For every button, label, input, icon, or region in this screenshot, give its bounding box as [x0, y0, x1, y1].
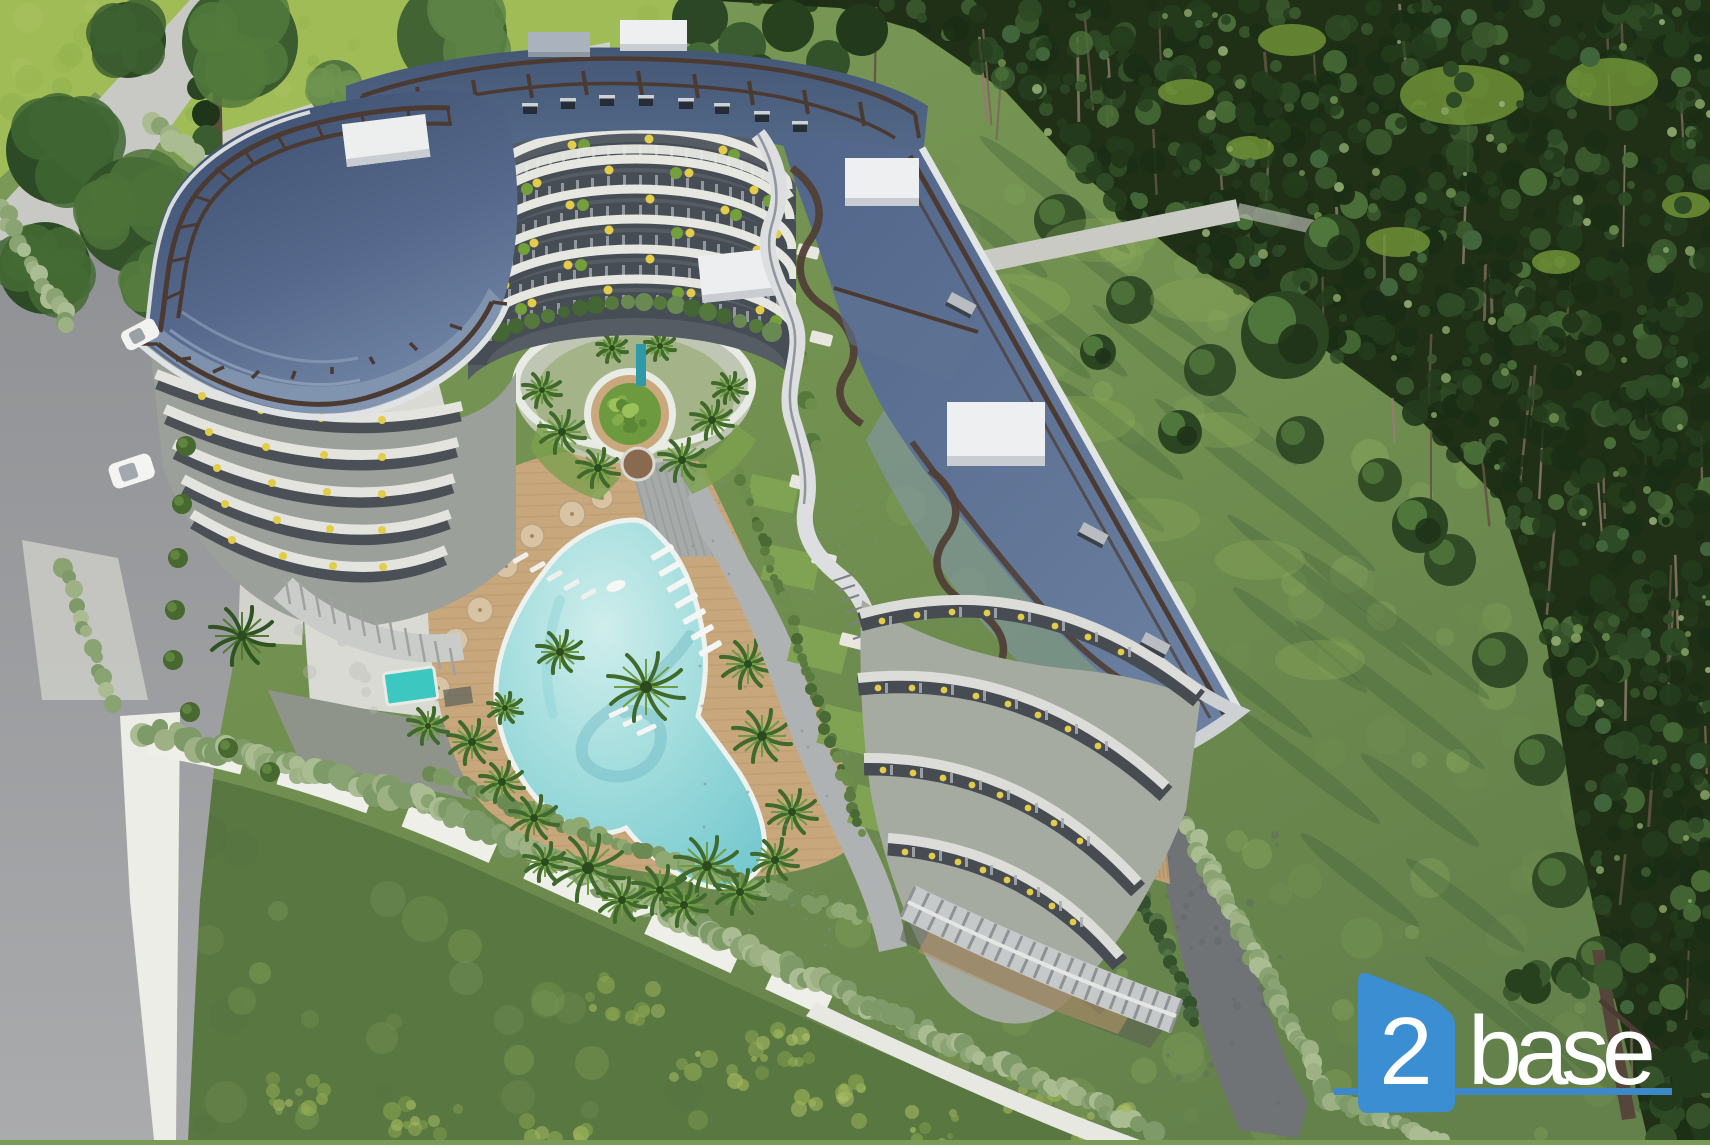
svg-text:base: base	[1468, 996, 1656, 1105]
svg-text:2: 2	[1379, 998, 1432, 1105]
